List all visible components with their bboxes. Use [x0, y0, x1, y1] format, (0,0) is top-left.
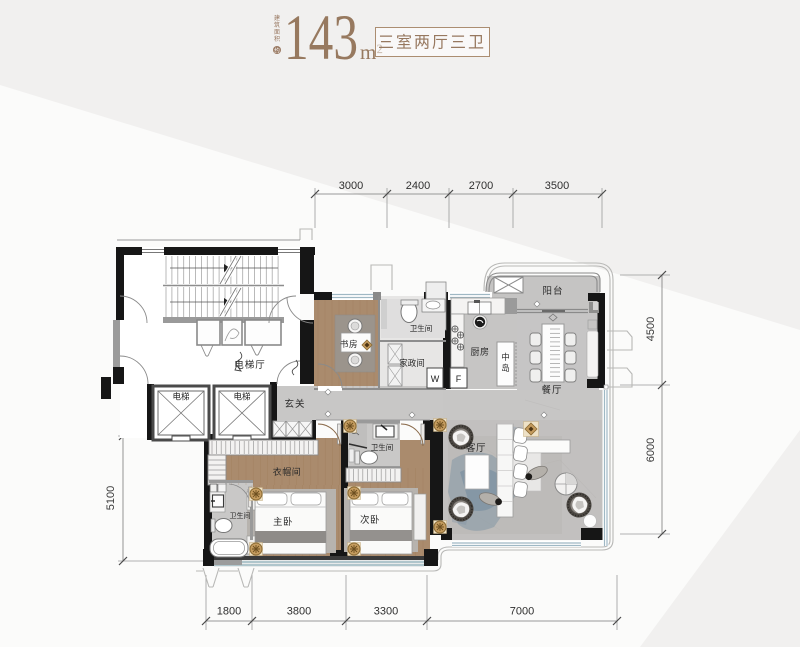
svg-text:5100: 5100	[105, 486, 117, 510]
svg-text:3800: 3800	[287, 606, 311, 618]
svg-text:餐厅: 餐厅	[541, 384, 562, 396]
svg-text:3500: 3500	[545, 180, 569, 192]
svg-text:主卧: 主卧	[273, 516, 293, 528]
svg-text:书房: 书房	[340, 339, 358, 349]
svg-text:F: F	[456, 374, 462, 384]
svg-text:电梯: 电梯	[233, 392, 251, 402]
svg-text:岛: 岛	[501, 363, 510, 373]
svg-text:卫生间: 卫生间	[410, 323, 433, 333]
svg-text:143: 143	[284, 2, 358, 74]
svg-text:2400: 2400	[406, 180, 430, 192]
svg-text:中: 中	[501, 352, 510, 362]
svg-text:阳台: 阳台	[542, 285, 563, 297]
svg-text:客厅: 客厅	[466, 442, 486, 454]
svg-text:玄关: 玄关	[284, 398, 305, 410]
svg-text:W: W	[431, 374, 440, 384]
svg-text:卫生间: 卫生间	[230, 511, 251, 520]
svg-text:3300: 3300	[374, 606, 398, 618]
svg-text:约: 约	[274, 47, 280, 55]
svg-text:2700: 2700	[469, 180, 493, 192]
svg-text:建: 建	[274, 14, 280, 22]
svg-text:1800: 1800	[217, 606, 241, 618]
svg-text:6000: 6000	[645, 438, 657, 462]
svg-text:7000: 7000	[510, 606, 534, 618]
svg-text:电梯: 电梯	[172, 392, 190, 402]
svg-text:厨房: 厨房	[470, 346, 489, 357]
svg-text:积: 积	[274, 35, 280, 43]
svg-text:3000: 3000	[339, 180, 363, 192]
svg-text:4500: 4500	[645, 317, 657, 341]
svg-text:衣帽间: 衣帽间	[273, 466, 302, 477]
svg-text:家政间: 家政间	[399, 358, 425, 368]
svg-text:筑: 筑	[274, 21, 280, 29]
svg-text:面: 面	[274, 29, 280, 36]
svg-text:次卧: 次卧	[360, 514, 380, 526]
svg-text:卫生间: 卫生间	[371, 442, 394, 452]
svg-text:电梯厅: 电梯厅	[234, 359, 266, 371]
svg-text:三室两厅三卫: 三室两厅三卫	[378, 34, 486, 52]
